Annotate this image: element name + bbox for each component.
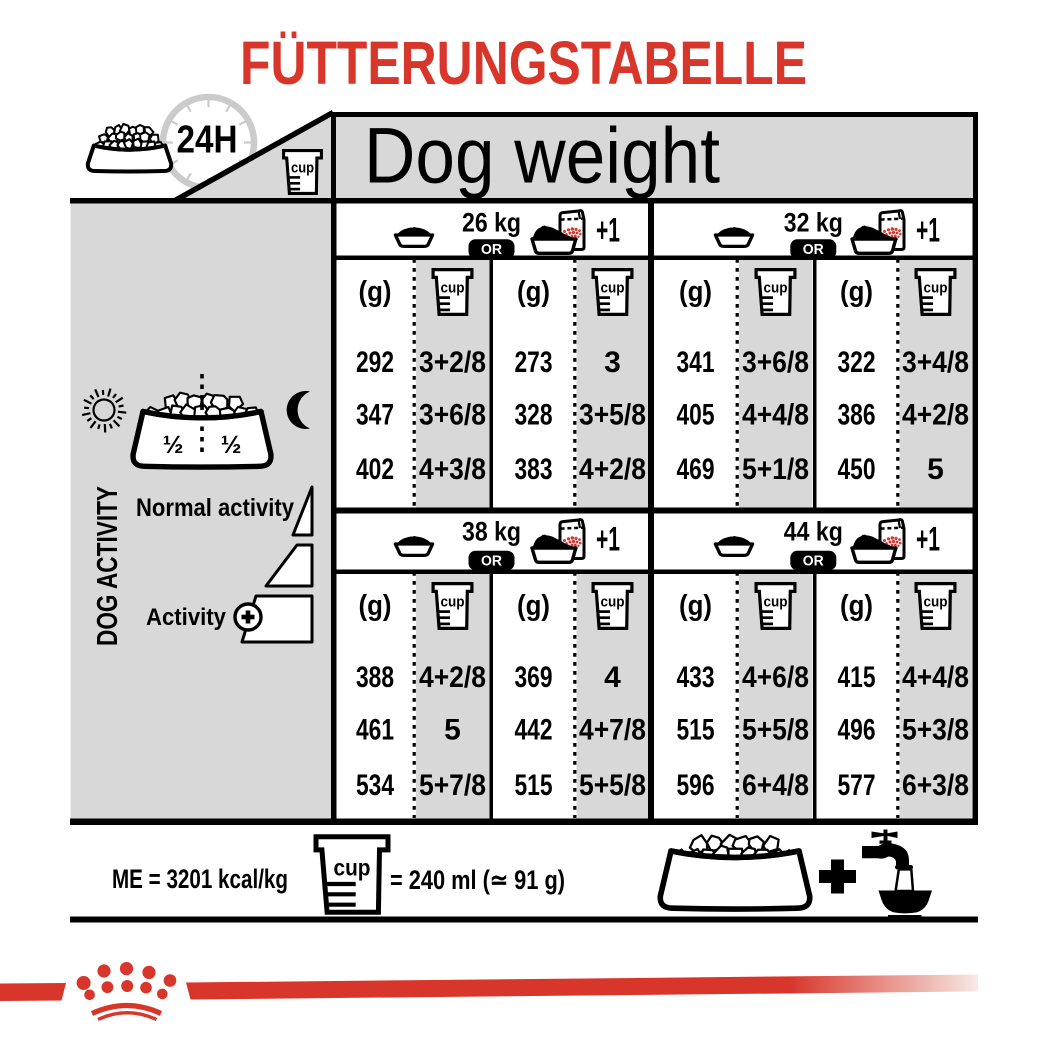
svg-text:cup: cup: [601, 280, 625, 297]
svg-text:24H: 24H: [177, 119, 238, 162]
svg-text:(g): (g): [517, 590, 550, 622]
svg-text:+1: +1: [596, 212, 620, 250]
svg-text:469: 469: [677, 453, 715, 486]
svg-text:388: 388: [356, 661, 394, 694]
svg-text:Dog weight: Dog weight: [364, 112, 720, 200]
svg-text:273: 273: [515, 346, 553, 379]
svg-text:577: 577: [838, 769, 876, 802]
svg-text:405: 405: [677, 399, 715, 432]
svg-text:½: ½: [163, 431, 184, 459]
svg-text:(g): (g): [840, 590, 873, 622]
svg-text:3+6/8: 3+6/8: [419, 399, 486, 432]
svg-text:5+7/8: 5+7/8: [419, 769, 486, 802]
svg-text:Activity: Activity: [146, 604, 227, 631]
svg-text:4+4/8: 4+4/8: [742, 399, 809, 432]
svg-text:347: 347: [356, 399, 394, 432]
svg-text:Normal activity: Normal activity: [136, 494, 294, 522]
svg-text:5+1/8: 5+1/8: [742, 453, 809, 486]
svg-text:4+7/8: 4+7/8: [579, 714, 646, 747]
svg-text:383: 383: [515, 453, 553, 486]
svg-text:cup: cup: [441, 594, 465, 611]
svg-text:3+6/8: 3+6/8: [742, 346, 809, 379]
svg-text:515: 515: [677, 714, 715, 747]
svg-text:½: ½: [221, 431, 242, 459]
svg-text:OR: OR: [803, 242, 825, 258]
svg-text:+1: +1: [596, 521, 620, 559]
svg-text:cup: cup: [924, 594, 948, 611]
svg-text:44 kg: 44 kg: [784, 517, 843, 547]
svg-text:4+2/8: 4+2/8: [579, 453, 646, 486]
svg-text:3+5/8: 3+5/8: [579, 399, 646, 432]
svg-text:cup: cup: [291, 161, 314, 177]
svg-text:328: 328: [515, 399, 553, 432]
svg-text:32 kg: 32 kg: [784, 208, 843, 238]
svg-text:4+2/8: 4+2/8: [419, 661, 486, 694]
svg-text:415: 415: [838, 661, 876, 694]
svg-text:(g): (g): [840, 276, 873, 308]
svg-text:FÜTTERUNGSTABELLE: FÜTTERUNGSTABELLE: [240, 29, 807, 97]
svg-text:292: 292: [356, 346, 394, 379]
svg-text:461: 461: [356, 714, 394, 747]
svg-text:6+3/8: 6+3/8: [902, 769, 969, 802]
svg-text:OR: OR: [481, 242, 503, 258]
svg-text:(g): (g): [517, 276, 550, 308]
svg-text:cup: cup: [601, 594, 625, 611]
svg-text:4+2/8: 4+2/8: [902, 399, 969, 432]
svg-text:+1: +1: [916, 212, 940, 250]
svg-text:cup: cup: [924, 280, 948, 297]
svg-text:4+6/8: 4+6/8: [742, 661, 809, 694]
svg-text:cup: cup: [441, 280, 465, 297]
svg-text:ME = 3201 kcal/kg: ME = 3201 kcal/kg: [112, 864, 288, 894]
svg-text:4: 4: [604, 661, 621, 694]
svg-text:369: 369: [515, 661, 553, 694]
svg-text:+1: +1: [916, 521, 940, 559]
svg-text:(g): (g): [359, 590, 392, 622]
svg-text:3: 3: [604, 346, 621, 379]
svg-text:cup: cup: [334, 855, 371, 881]
svg-text:386: 386: [838, 399, 876, 432]
svg-text:496: 496: [838, 714, 876, 747]
svg-text:4+3/8: 4+3/8: [419, 453, 486, 486]
svg-text:515: 515: [515, 769, 553, 802]
svg-text:596: 596: [677, 769, 715, 802]
svg-text:cup: cup: [764, 594, 788, 611]
svg-text:38 kg: 38 kg: [462, 517, 521, 547]
svg-text:3+4/8: 3+4/8: [902, 346, 969, 379]
svg-text:5: 5: [444, 714, 461, 747]
svg-text:402: 402: [356, 453, 394, 486]
svg-text:5: 5: [927, 453, 944, 486]
svg-text:= 240 ml (≃ 91 g): = 240 ml (≃ 91 g): [390, 865, 565, 895]
svg-text:26 kg: 26 kg: [462, 208, 521, 238]
svg-text:433: 433: [677, 661, 715, 694]
svg-text:cup: cup: [764, 280, 788, 297]
svg-text:4+4/8: 4+4/8: [902, 661, 969, 694]
svg-text:DOG ACTIVITY: DOG ACTIVITY: [92, 486, 124, 646]
svg-text:341: 341: [677, 346, 715, 379]
svg-text:OR: OR: [481, 554, 503, 570]
svg-text:6+4/8: 6+4/8: [742, 769, 809, 802]
svg-text:(g): (g): [679, 276, 712, 308]
svg-text:3+2/8: 3+2/8: [419, 346, 486, 379]
svg-text:5+3/8: 5+3/8: [902, 714, 969, 747]
svg-text:5+5/8: 5+5/8: [579, 769, 646, 802]
svg-text:(g): (g): [679, 590, 712, 622]
svg-text:OR: OR: [803, 554, 825, 570]
svg-text:450: 450: [838, 453, 876, 486]
svg-text:442: 442: [515, 714, 553, 747]
svg-text:(g): (g): [359, 276, 392, 308]
svg-text:322: 322: [838, 346, 876, 379]
svg-text:534: 534: [356, 769, 394, 802]
svg-text:5+5/8: 5+5/8: [742, 714, 809, 747]
